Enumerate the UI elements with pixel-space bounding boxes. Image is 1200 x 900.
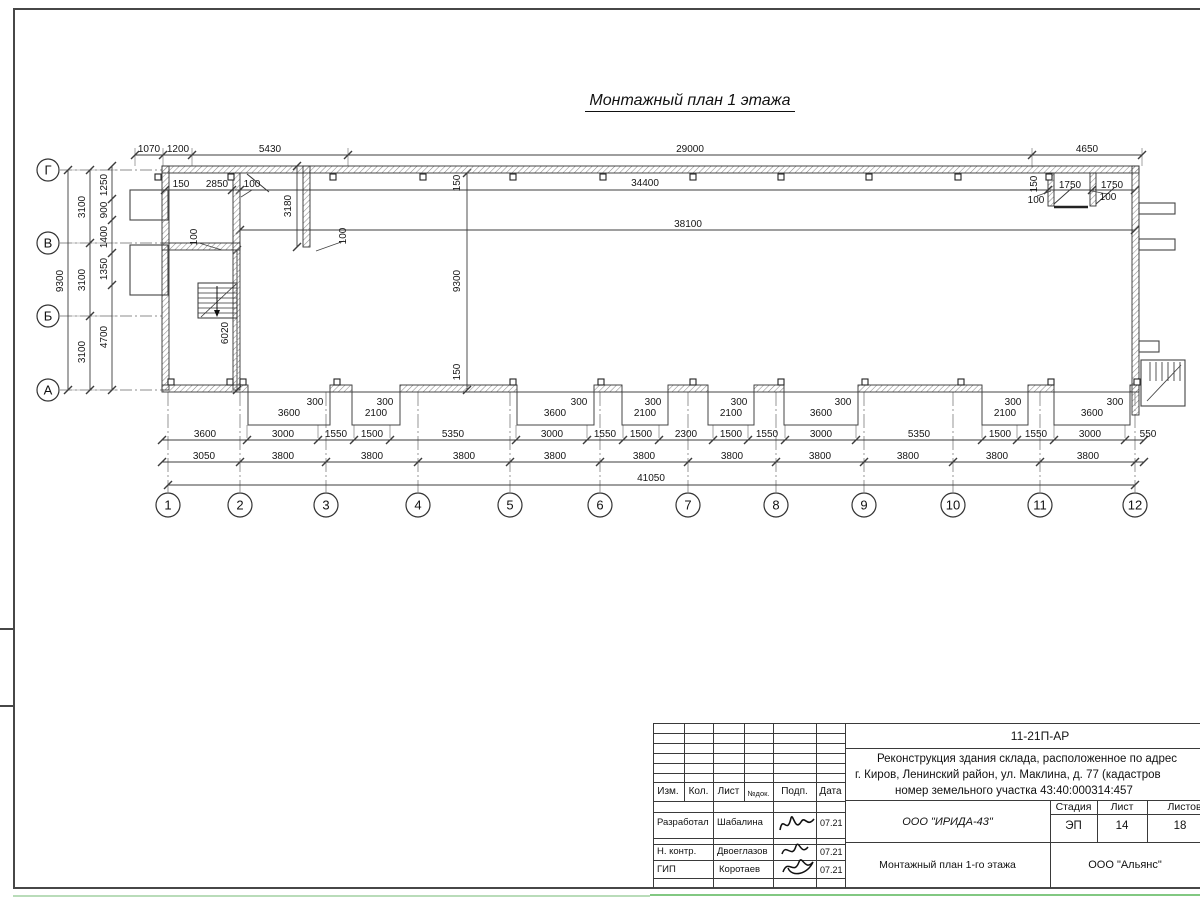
dim-label: 6020 bbox=[220, 321, 231, 344]
dim-label: 150 bbox=[173, 179, 190, 190]
column-mark bbox=[862, 379, 868, 385]
screen-edge-line bbox=[13, 895, 650, 897]
column-mark bbox=[690, 174, 696, 180]
axis-bubble-label: 8 bbox=[772, 498, 779, 513]
dim-label: 2100 bbox=[634, 408, 657, 419]
axis-bubble-label: Г bbox=[44, 163, 51, 178]
wall bbox=[1130, 385, 1139, 392]
dim-label: 2850 bbox=[206, 179, 229, 190]
drawing-page: Монтажный план 1 этажа 10701200543029000… bbox=[0, 0, 1200, 900]
row-name: Шабалина bbox=[717, 817, 763, 828]
row-role: Разработал bbox=[657, 817, 709, 828]
row-name: Коротаев bbox=[719, 864, 760, 875]
dim-label: 3180 bbox=[283, 194, 294, 217]
column-mark bbox=[778, 379, 784, 385]
leader-line bbox=[241, 190, 252, 197]
floor-plan: 1070120054302900046501502850100344003810… bbox=[0, 0, 1200, 560]
wall bbox=[162, 243, 240, 250]
dim-label: 9300 bbox=[55, 269, 66, 292]
column-mark bbox=[1046, 174, 1052, 180]
dim-label: 3800 bbox=[272, 451, 295, 462]
dim-label: 3800 bbox=[986, 451, 1009, 462]
axis-bubble-label: 4 bbox=[414, 498, 421, 513]
dim-label: 300 bbox=[835, 397, 852, 408]
col-kol: Кол. bbox=[684, 786, 713, 797]
column-mark bbox=[510, 174, 516, 180]
sheets-value: 18 bbox=[1147, 820, 1200, 832]
dim-label: 150 bbox=[1029, 175, 1040, 192]
dim-label: 3600 bbox=[194, 429, 217, 440]
dim-label: 2100 bbox=[365, 408, 388, 419]
dim-label: 3800 bbox=[544, 451, 567, 462]
project-line: г. Киров, Ленинский район, ул. Маклина, … bbox=[855, 769, 1161, 781]
column-mark bbox=[240, 379, 246, 385]
dim-label: 3000 bbox=[272, 429, 295, 440]
project-line: номер земельного участка 43:40:000314:45… bbox=[895, 785, 1133, 797]
frame-bottom bbox=[13, 887, 1200, 889]
dim-label: 4650 bbox=[1076, 144, 1099, 155]
col-podp: Подп. bbox=[773, 786, 816, 797]
column-mark bbox=[1048, 379, 1054, 385]
axis-bubble-label: 3 bbox=[322, 498, 329, 513]
wall bbox=[754, 385, 784, 392]
dim-label: 300 bbox=[1107, 397, 1124, 408]
wall bbox=[1132, 166, 1139, 415]
dim-label: 41050 bbox=[637, 473, 665, 484]
dim-label: 550 bbox=[1140, 429, 1157, 440]
dim-label: 29000 bbox=[676, 144, 704, 155]
wall bbox=[162, 385, 248, 392]
col-list: Лист bbox=[713, 786, 744, 797]
dim-label: 4700 bbox=[99, 325, 110, 348]
row-name: Двоеглазов bbox=[717, 846, 768, 857]
axis-bubble-label: 12 bbox=[1128, 498, 1142, 513]
dim-label: 2100 bbox=[720, 408, 743, 419]
column-mark bbox=[420, 174, 426, 180]
axis-bubble-label: 1 bbox=[164, 498, 171, 513]
exterior-structure bbox=[1139, 239, 1175, 250]
dim-label: 1400 bbox=[99, 225, 110, 248]
dim-label: 2300 bbox=[675, 429, 698, 440]
dim-label: 300 bbox=[307, 397, 324, 408]
org-center: ООО "ИРИДА-43" bbox=[845, 816, 1050, 828]
dim-label: 5430 bbox=[259, 144, 282, 155]
dim-label: 3600 bbox=[810, 408, 833, 419]
dim-label: 1550 bbox=[756, 429, 779, 440]
wall bbox=[668, 385, 708, 392]
dim-label: 3050 bbox=[193, 451, 216, 462]
dim-label: 150 bbox=[452, 363, 463, 380]
row-role: Н. контр. bbox=[657, 846, 696, 857]
axis-bubble-label: 7 bbox=[684, 498, 691, 513]
row-role: ГИП bbox=[657, 864, 676, 875]
dim-label: 100 bbox=[1100, 192, 1117, 203]
dim-label: 150 bbox=[452, 174, 463, 191]
row-date: 07.21 bbox=[820, 847, 843, 857]
sheet-label: Лист bbox=[1097, 801, 1147, 813]
dim-label: 38100 bbox=[674, 219, 702, 230]
axis-bubble-label: Б bbox=[44, 309, 53, 324]
column-mark bbox=[778, 174, 784, 180]
column-mark bbox=[227, 379, 233, 385]
dim-label: 1350 bbox=[99, 257, 110, 280]
project-line: Реконструкция здания склада, расположенн… bbox=[877, 753, 1177, 765]
wall bbox=[233, 173, 240, 390]
axis-bubble-label: 6 bbox=[596, 498, 603, 513]
dim-label: 3000 bbox=[541, 429, 564, 440]
dim-label: 300 bbox=[1005, 397, 1022, 408]
column-mark bbox=[1134, 379, 1140, 385]
column-mark bbox=[955, 174, 961, 180]
dim-label: 1500 bbox=[720, 429, 743, 440]
wall bbox=[303, 166, 310, 247]
exterior-structure bbox=[1141, 360, 1185, 406]
dim-label: 100 bbox=[338, 227, 349, 244]
dim-label: 100 bbox=[189, 228, 200, 245]
col-ndok: №док. bbox=[744, 789, 773, 798]
sheet-value: 14 bbox=[1097, 820, 1147, 832]
dim-label: 1550 bbox=[325, 429, 348, 440]
dim-label: 1070 bbox=[138, 144, 161, 155]
column-mark bbox=[168, 379, 174, 385]
wall bbox=[400, 385, 517, 392]
dim-label: 1750 bbox=[1059, 180, 1082, 191]
column-mark bbox=[690, 379, 696, 385]
dim-label: 3600 bbox=[278, 408, 301, 419]
stage-label: Стадия bbox=[1050, 801, 1097, 813]
column-mark bbox=[228, 174, 234, 180]
dim-label: 3800 bbox=[361, 451, 384, 462]
dim-label: 9300 bbox=[452, 269, 463, 292]
column-mark bbox=[330, 174, 336, 180]
dim-label: 1550 bbox=[1025, 429, 1048, 440]
sheets-label: Листов bbox=[1147, 801, 1200, 813]
axis-bubble-label: 2 bbox=[236, 498, 243, 513]
dim-label: 1500 bbox=[630, 429, 653, 440]
exterior-structure bbox=[1139, 341, 1159, 352]
dim-label: 3800 bbox=[897, 451, 920, 462]
wall bbox=[858, 385, 982, 392]
column-mark bbox=[866, 174, 872, 180]
col-data: Дата bbox=[816, 786, 845, 797]
axis-bubble-label: 9 bbox=[860, 498, 867, 513]
dim-label: 300 bbox=[571, 397, 588, 408]
dim-label: 3800 bbox=[1077, 451, 1100, 462]
dim-label: 3800 bbox=[721, 451, 744, 462]
dim-label: 1250 bbox=[99, 173, 110, 196]
column-mark bbox=[600, 174, 606, 180]
dim-label: 900 bbox=[99, 201, 110, 218]
column-mark bbox=[598, 379, 604, 385]
sheet-title: Монтажный план 1-го этажа bbox=[845, 859, 1050, 871]
exterior-structure bbox=[1139, 203, 1175, 214]
column-mark bbox=[510, 379, 516, 385]
wall bbox=[1028, 385, 1054, 392]
stage-value: ЭП bbox=[1050, 820, 1097, 832]
dim-label: 5350 bbox=[908, 429, 931, 440]
dim-label: 100 bbox=[244, 179, 261, 190]
dim-label: 300 bbox=[731, 397, 748, 408]
axis-bubble-label: 11 bbox=[1033, 498, 1047, 513]
row-date: 07.21 bbox=[820, 865, 843, 875]
dim-label: 3800 bbox=[809, 451, 832, 462]
org-right: ООО "Альянс" bbox=[1050, 859, 1200, 871]
wall bbox=[330, 385, 352, 392]
plan-generated: 1070120054302900046501502850100344003810… bbox=[37, 144, 1185, 517]
fold-mark bbox=[0, 705, 13, 707]
dim-label: 100 bbox=[1028, 195, 1045, 206]
dim-label: 300 bbox=[377, 397, 394, 408]
dim-label: 1500 bbox=[989, 429, 1012, 440]
dim-label: 3800 bbox=[453, 451, 476, 462]
dim-label: 1200 bbox=[167, 144, 190, 155]
screen-edge-line bbox=[650, 894, 1200, 896]
dim-label: 3000 bbox=[1079, 429, 1102, 440]
column-mark bbox=[958, 379, 964, 385]
dim-label: 3800 bbox=[633, 451, 656, 462]
signature bbox=[776, 810, 818, 838]
axis-bubble-label: А bbox=[44, 383, 53, 398]
dim-label: 3600 bbox=[1081, 408, 1104, 419]
dim-label: 3100 bbox=[77, 268, 88, 291]
dim-label: 3100 bbox=[77, 195, 88, 218]
wall bbox=[1090, 173, 1096, 206]
col-izm: Изм. bbox=[652, 786, 684, 797]
fold-mark bbox=[0, 628, 13, 630]
dim-label: 1500 bbox=[361, 429, 384, 440]
column-mark bbox=[155, 174, 161, 180]
dim-label: 5350 bbox=[442, 429, 465, 440]
dim-label: 3100 bbox=[77, 340, 88, 363]
axis-bubble-label: 10 bbox=[946, 498, 960, 513]
dim-label: 34400 bbox=[631, 178, 659, 189]
signature bbox=[778, 840, 818, 880]
axis-bubble-label: В bbox=[44, 236, 53, 251]
dim-label: 2100 bbox=[994, 408, 1017, 419]
dim-label: 300 bbox=[645, 397, 662, 408]
dim-label: 1750 bbox=[1101, 180, 1124, 191]
dim-label: 3000 bbox=[810, 429, 833, 440]
axis-bubble-label: 5 bbox=[506, 498, 513, 513]
dim-label: 1550 bbox=[594, 429, 617, 440]
wall bbox=[594, 385, 622, 392]
doc-code: 11-21П-АР bbox=[845, 729, 1200, 743]
stair-arrow-head bbox=[214, 310, 220, 317]
dim-label: 3600 bbox=[544, 408, 567, 419]
stair-arrow bbox=[1147, 365, 1181, 401]
row-date: 07.21 bbox=[820, 818, 843, 828]
column-mark bbox=[334, 379, 340, 385]
